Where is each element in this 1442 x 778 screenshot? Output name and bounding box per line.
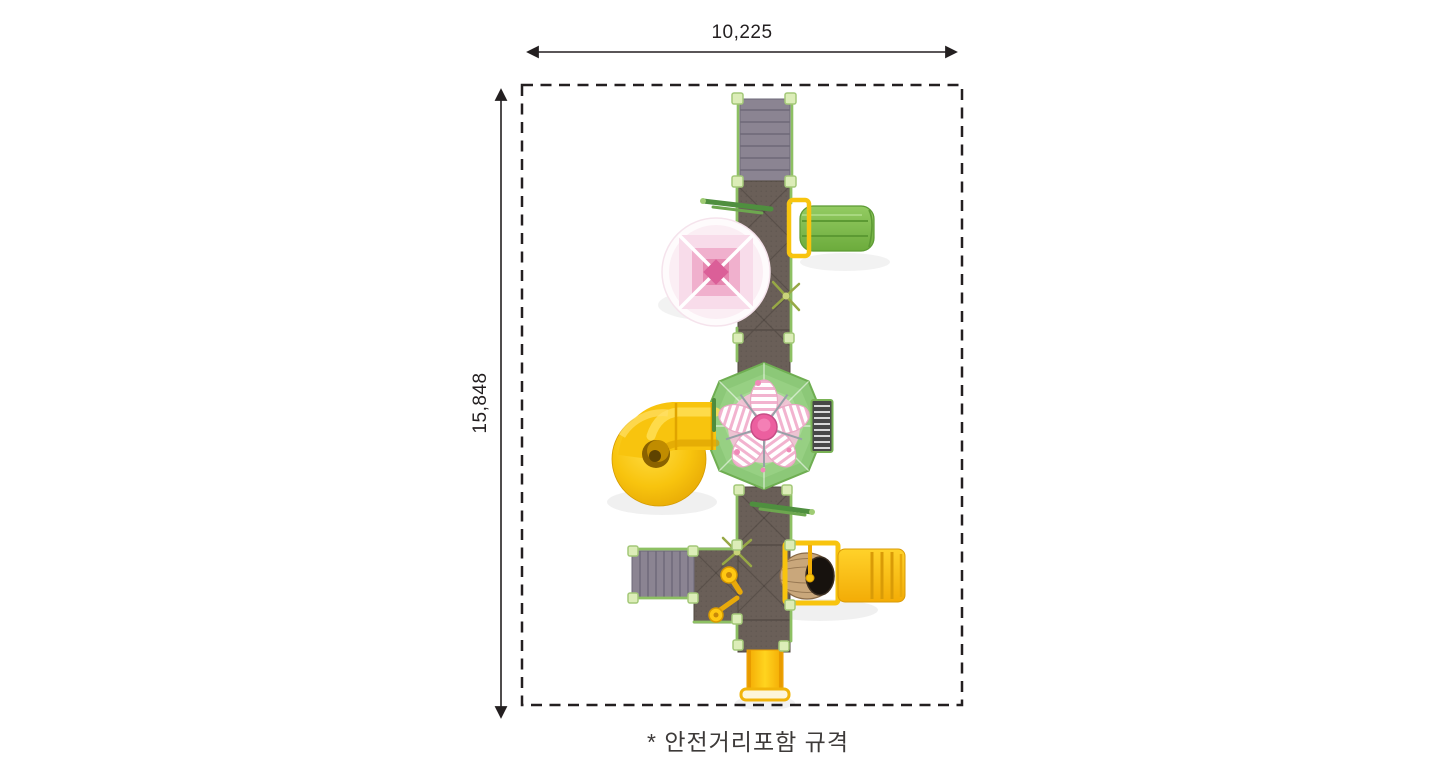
caption-safety-note: * 안전거리포함 규격 (538, 723, 958, 757)
plan-drawing: 10,225 15,848 * 안전거리포함 규격 (0, 0, 1442, 778)
spiral-tube-slide (612, 400, 716, 506)
left-stairs (632, 551, 694, 598)
square-canopy (662, 218, 770, 326)
plan-graphics (0, 0, 1442, 778)
top-stairs (738, 99, 792, 182)
width-dimension-label: 10,225 (522, 22, 962, 44)
bottom-slide (741, 650, 789, 700)
height-dimension-label: 15,848 (470, 343, 492, 463)
straight-slide-green (789, 200, 874, 256)
climb-ladder (812, 400, 833, 452)
straight-slide-yellow (838, 549, 905, 602)
slide-end-bar (741, 689, 789, 700)
